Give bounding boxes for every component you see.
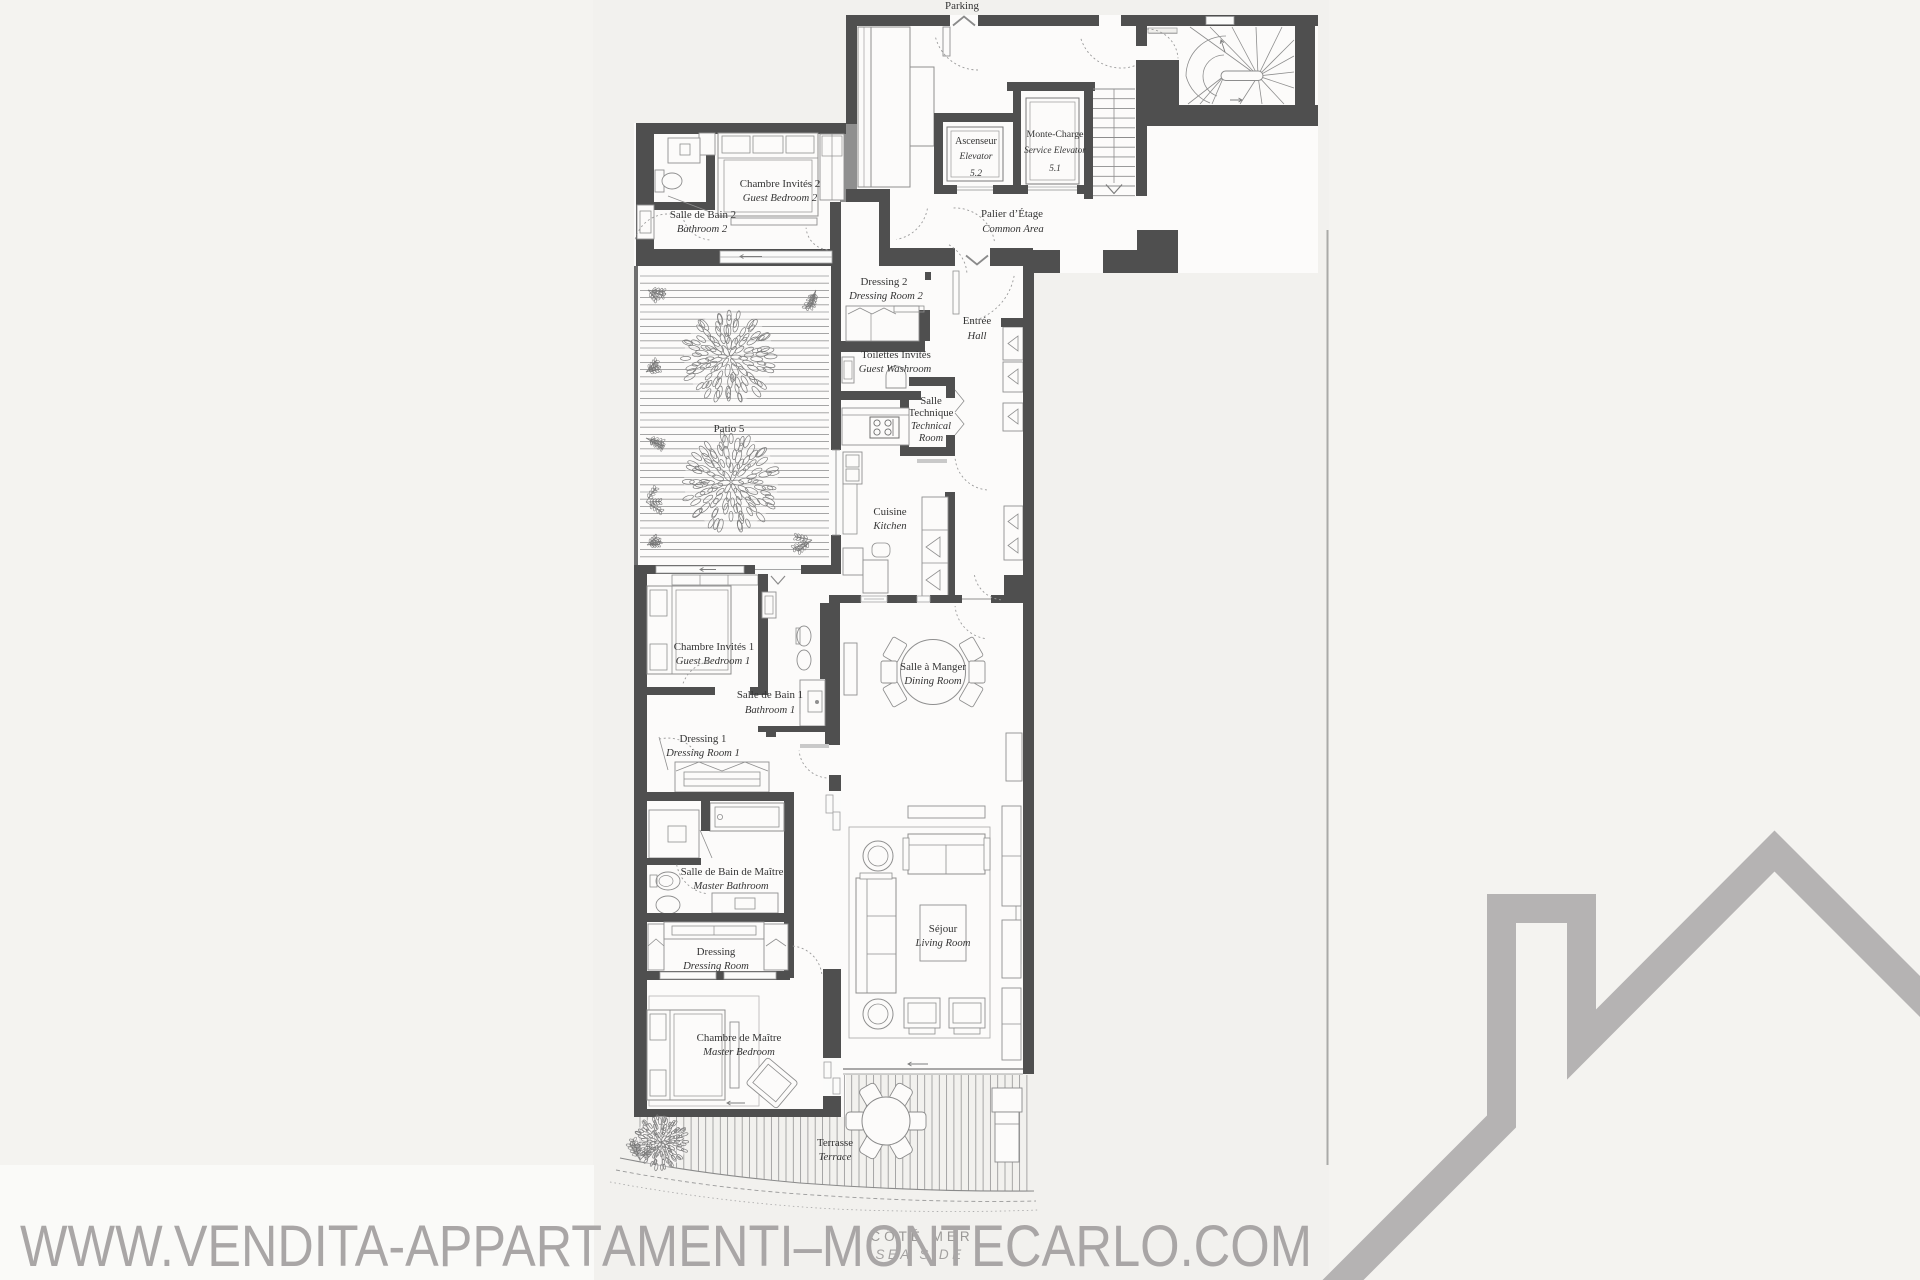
svg-text:Master Bedroom: Master Bedroom — [702, 1046, 775, 1058]
svg-text:Chambre de Maître: Chambre de Maître — [697, 1032, 782, 1044]
svg-text:Palier d’Étage: Palier d’Étage — [981, 208, 1043, 220]
svg-text:Dining Room: Dining Room — [903, 675, 962, 687]
svg-text:Bathroom 1: Bathroom 1 — [745, 704, 795, 716]
svg-text:Guest Bedroom 2: Guest Bedroom 2 — [743, 192, 818, 204]
svg-text:Technical: Technical — [911, 421, 951, 432]
svg-text:Terrasse: Terrasse — [817, 1137, 853, 1149]
svg-text:WWW.VENDITA-APPART: WWW.VENDITA-APPART — [20, 1214, 602, 1279]
svg-text:Chambre Invités 2: Chambre Invités 2 — [740, 178, 820, 190]
svg-text:Kitchen: Kitchen — [872, 520, 906, 532]
svg-text:5.1: 5.1 — [1049, 164, 1061, 174]
svg-text:Elevator: Elevator — [958, 151, 992, 162]
svg-text:Service Elevator: Service Elevator — [1024, 146, 1086, 156]
svg-text:Salle de Bain 2: Salle de Bain 2 — [670, 209, 736, 221]
svg-text:Master Bathroom: Master Bathroom — [692, 880, 769, 892]
svg-text:Dressing Room: Dressing Room — [682, 960, 749, 972]
svg-text:Room: Room — [918, 433, 944, 444]
svg-text:Monte-Charge: Monte-Charge — [1027, 129, 1085, 140]
svg-text:Common Area: Common Area — [982, 223, 1043, 235]
svg-text:Salle à Manger: Salle à Manger — [900, 661, 966, 673]
svg-text:Dressing 2: Dressing 2 — [861, 276, 908, 288]
svg-text:Terrace: Terrace — [819, 1151, 852, 1163]
svg-text:Chambre Invités 1: Chambre Invités 1 — [674, 641, 754, 653]
svg-text:AMENTI–MONTECARLO.COM: AMENTI–MONTECARLO.COM — [602, 1214, 1312, 1279]
svg-text:Guest Bedroom 1: Guest Bedroom 1 — [676, 655, 750, 667]
svg-text:Guest Washroom: Guest Washroom — [859, 363, 932, 375]
svg-text:Entrée: Entrée — [963, 315, 992, 327]
svg-text:Living Room: Living Room — [915, 937, 971, 949]
svg-text:Dressing: Dressing — [697, 946, 736, 958]
svg-text:Salle de Bain de Maître: Salle de Bain de Maître — [681, 866, 784, 878]
svg-text:Parking: Parking — [945, 0, 979, 12]
svg-text:Technique: Technique — [909, 407, 954, 419]
svg-text:Séjour: Séjour — [929, 923, 958, 935]
svg-text:Hall: Hall — [966, 330, 986, 342]
svg-text:5.2: 5.2 — [970, 168, 982, 179]
svg-text:Ascenseur: Ascenseur — [955, 136, 997, 147]
svg-text:Salle de Bain 1: Salle de Bain 1 — [737, 689, 803, 701]
svg-text:Dressing Room 1: Dressing Room 1 — [665, 747, 740, 759]
svg-text:Salle: Salle — [920, 395, 942, 407]
svg-text:Dressing Room 2: Dressing Room 2 — [848, 290, 923, 302]
svg-text:Cuisine: Cuisine — [873, 506, 906, 518]
svg-text:Bathroom 2: Bathroom 2 — [677, 223, 728, 235]
svg-text:Toilettes Invités: Toilettes Invités — [861, 349, 931, 361]
svg-text:Patio 5: Patio 5 — [714, 423, 745, 435]
